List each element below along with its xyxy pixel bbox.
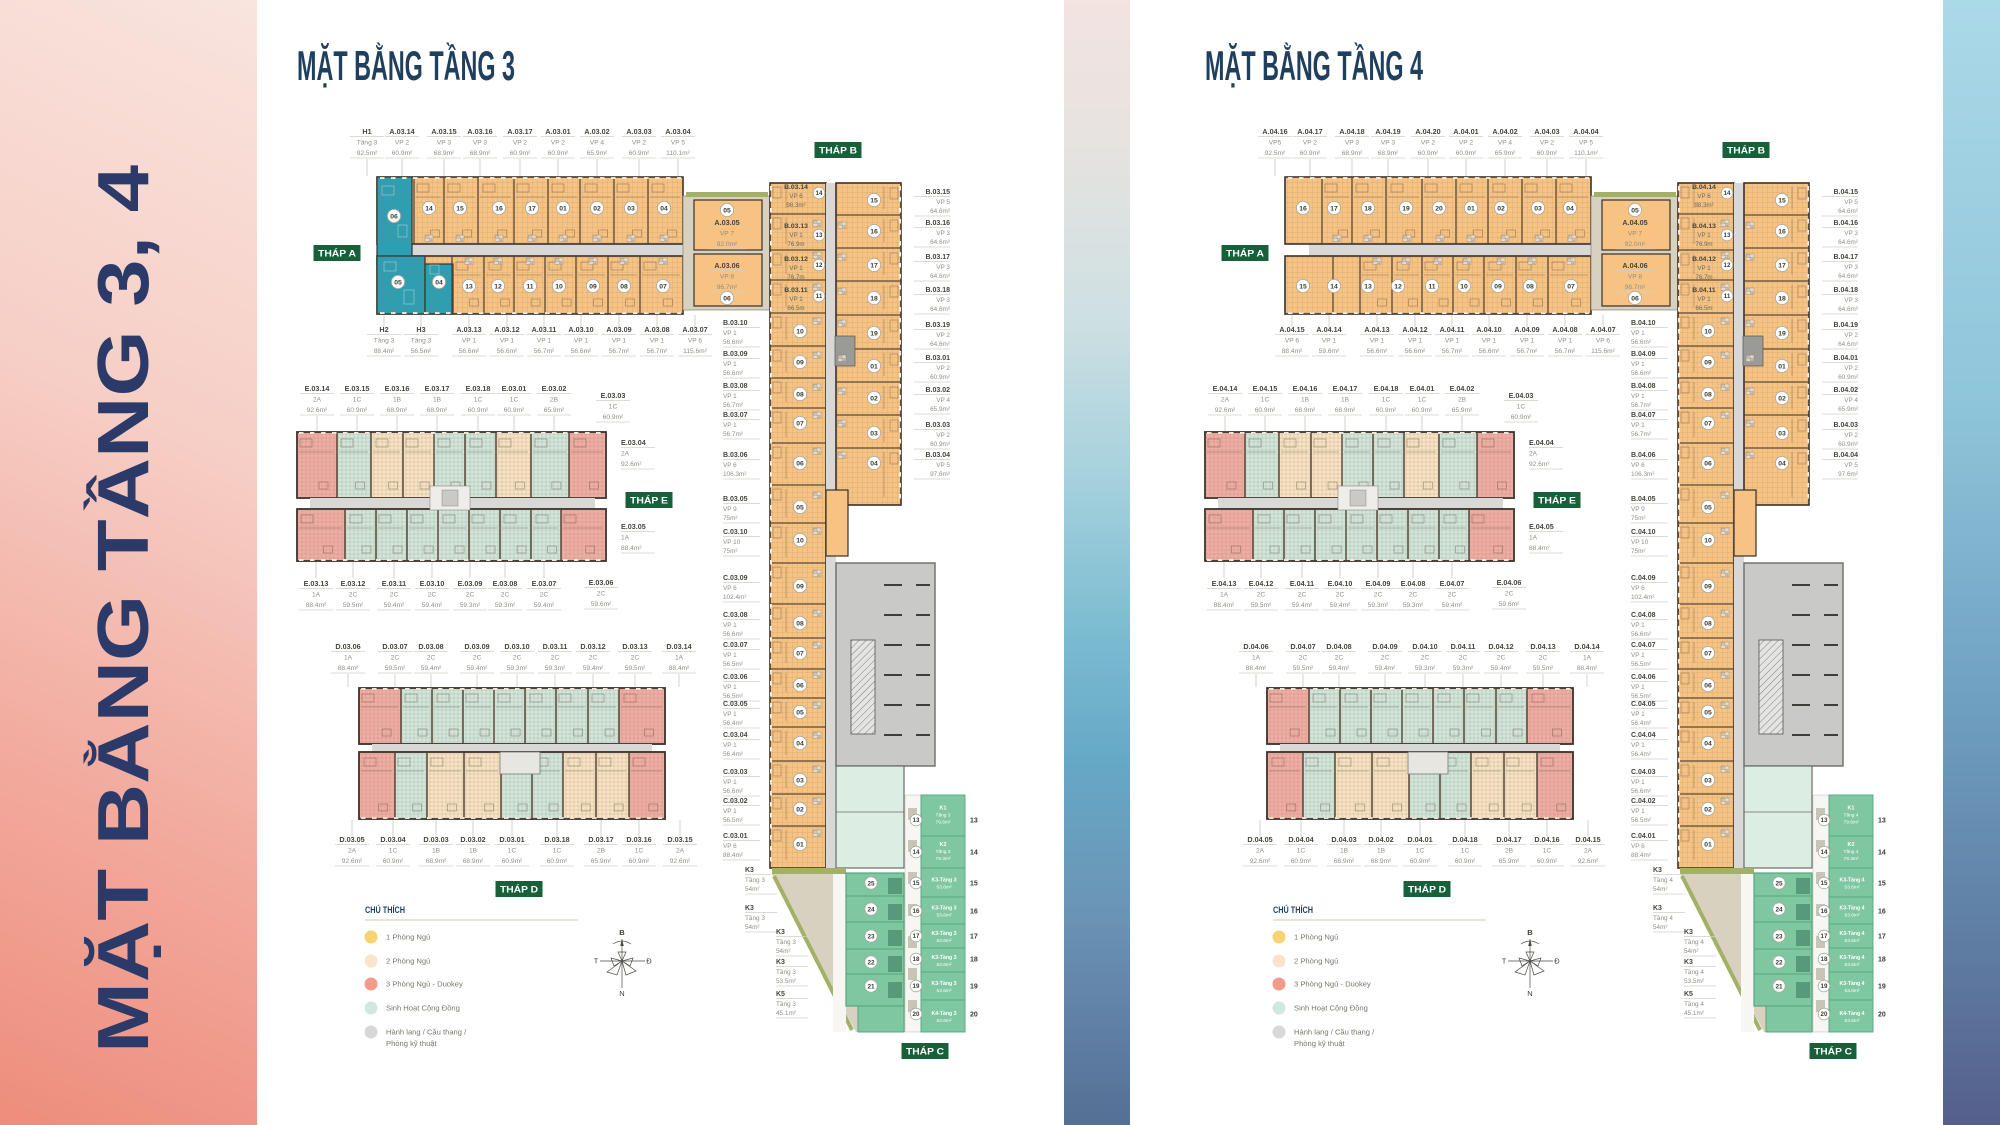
- svg-text:10: 10: [1704, 328, 1712, 335]
- svg-text:C.03.08: C.03.08: [723, 612, 748, 619]
- svg-text:13: 13: [465, 283, 473, 290]
- svg-text:VP 1: VP 1: [1697, 296, 1711, 303]
- svg-text:59.3m²: 59.3m²: [1368, 602, 1389, 609]
- svg-text:1 Phòng Ngủ: 1 Phòng Ngủ: [1294, 933, 1338, 942]
- svg-text:B.04.11: B.04.11: [1692, 287, 1716, 294]
- svg-text:17: 17: [1821, 933, 1828, 940]
- svg-text:76.7m: 76.7m: [1695, 274, 1712, 281]
- svg-text:Đ: Đ: [646, 957, 652, 966]
- svg-text:56.7m²: 56.7m²: [534, 348, 555, 355]
- svg-text:01: 01: [870, 363, 878, 370]
- svg-text:14: 14: [970, 850, 978, 857]
- svg-text:1C: 1C: [510, 397, 519, 404]
- svg-text:THÁP D: THÁP D: [500, 884, 539, 894]
- svg-text:T: T: [1502, 957, 1507, 966]
- svg-text:THÁP D: THÁP D: [1408, 884, 1447, 894]
- svg-text:A.04.04: A.04.04: [1573, 127, 1598, 136]
- svg-text:B.04.14: B.04.14: [1692, 184, 1716, 191]
- svg-text:A.04.06: A.04.06: [1622, 261, 1647, 270]
- svg-text:92.6m²: 92.6m²: [1529, 461, 1550, 468]
- svg-text:E.04.09: E.04.09: [1366, 579, 1391, 588]
- svg-text:VP 1: VP 1: [1697, 232, 1711, 239]
- svg-text:04: 04: [796, 740, 804, 747]
- svg-text:VP 1: VP 1: [537, 338, 552, 345]
- svg-text:VP 2: VP 2: [1303, 140, 1318, 147]
- svg-text:11: 11: [526, 283, 533, 290]
- svg-text:60.9m²: 60.9m²: [1838, 441, 1858, 448]
- svg-text:K3: K3: [745, 905, 754, 912]
- svg-text:2C: 2C: [428, 592, 437, 599]
- svg-text:88.4m²: 88.4m²: [1631, 852, 1651, 859]
- svg-text:09: 09: [1494, 283, 1502, 290]
- svg-text:59.3m²: 59.3m²: [545, 665, 566, 672]
- svg-text:05: 05: [1704, 504, 1712, 511]
- svg-text:59.5m²: 59.5m²: [625, 665, 646, 672]
- svg-text:VP 2: VP 2: [551, 140, 566, 147]
- svg-text:56.4m²: 56.4m²: [1631, 720, 1651, 727]
- svg-text:25: 25: [1775, 880, 1783, 887]
- svg-text:K3: K3: [1684, 929, 1693, 936]
- svg-text:24: 24: [867, 906, 875, 913]
- svg-text:2C: 2C: [589, 655, 598, 662]
- svg-text:20: 20: [970, 1012, 978, 1019]
- svg-text:VP 1: VP 1: [612, 338, 627, 345]
- svg-text:64.6m²: 64.6m²: [1838, 341, 1858, 348]
- svg-text:C.04.04: C.04.04: [1631, 732, 1656, 739]
- svg-text:THÁP B: THÁP B: [1727, 145, 1766, 155]
- svg-text:2C: 2C: [513, 655, 522, 662]
- svg-text:92.6m²: 92.6m²: [670, 858, 691, 865]
- svg-text:C.04.05: C.04.05: [1631, 701, 1656, 708]
- svg-text:53.6m²: 53.6m²: [937, 988, 952, 994]
- svg-text:60.9m²: 60.9m²: [547, 858, 568, 865]
- svg-text:VP 2: VP 2: [1540, 140, 1555, 147]
- svg-text:B.03.01: B.03.01: [925, 355, 950, 362]
- svg-text:88.4m²: 88.4m²: [1529, 545, 1550, 552]
- svg-text:B.04.15: B.04.15: [1833, 189, 1858, 196]
- svg-text:D.03.11: D.03.11: [543, 642, 568, 651]
- svg-text:1 Phòng Ngủ: 1 Phòng Ngủ: [386, 933, 430, 942]
- svg-text:59.6m²: 59.6m²: [1319, 348, 1340, 355]
- svg-text:21: 21: [867, 983, 875, 990]
- svg-text:B.03.09: B.03.09: [723, 351, 748, 358]
- svg-text:VP 1: VP 1: [500, 338, 515, 345]
- svg-text:E.03.08: E.03.08: [493, 579, 518, 588]
- svg-text:20: 20: [913, 1011, 920, 1018]
- svg-text:1C: 1C: [508, 848, 517, 855]
- svg-text:E.03.07: E.03.07: [532, 579, 557, 588]
- svg-text:53.6m²: 53.6m²: [937, 962, 952, 968]
- svg-text:C.04.03: C.04.03: [1631, 769, 1656, 776]
- svg-text:59.4m²: 59.4m²: [583, 665, 604, 672]
- svg-text:05: 05: [1704, 709, 1712, 716]
- svg-text:56.4m²: 56.4m²: [723, 720, 743, 727]
- svg-text:18: 18: [970, 957, 978, 964]
- svg-text:1C: 1C: [353, 397, 362, 404]
- svg-text:E.04.13: E.04.13: [1212, 579, 1237, 588]
- svg-text:THÁP C: THÁP C: [906, 1046, 945, 1056]
- svg-text:D.04.07: D.04.07: [1290, 642, 1315, 651]
- svg-text:16: 16: [1878, 909, 1886, 916]
- svg-text:VP 3: VP 3: [936, 297, 950, 304]
- svg-text:Tầng 3: Tầng 3: [776, 999, 796, 1008]
- svg-text:1A: 1A: [1252, 655, 1261, 662]
- svg-text:45.1m²: 45.1m²: [776, 1010, 796, 1017]
- svg-text:60.9m²: 60.9m²: [930, 441, 950, 448]
- svg-text:B.04.04: B.04.04: [1833, 452, 1858, 459]
- svg-text:2B: 2B: [597, 848, 606, 855]
- svg-text:68.9m²: 68.9m²: [1371, 858, 1392, 865]
- svg-text:K3-Tầng 3: K3-Tầng 3: [931, 981, 956, 987]
- svg-text:14: 14: [425, 205, 433, 212]
- svg-text:02: 02: [870, 395, 878, 402]
- svg-text:1C: 1C: [1261, 397, 1270, 404]
- svg-text:56.6m²: 56.6m²: [1631, 788, 1651, 795]
- svg-text:2B: 2B: [1458, 397, 1467, 404]
- svg-text:A.03.03: A.03.03: [626, 127, 651, 136]
- svg-text:K3: K3: [1653, 867, 1662, 874]
- svg-text:59.5m²: 59.5m²: [385, 665, 406, 672]
- svg-text:60.9m²: 60.9m²: [930, 374, 950, 381]
- svg-text:56.6m²: 56.6m²: [1631, 370, 1651, 377]
- svg-text:68.9m²: 68.9m²: [426, 858, 447, 865]
- svg-text:D.04.09: D.04.09: [1372, 642, 1397, 651]
- svg-text:C.03.05: C.03.05: [723, 701, 748, 708]
- svg-text:THÁP E: THÁP E: [1538, 495, 1576, 505]
- svg-text:VP 8: VP 8: [720, 274, 735, 281]
- svg-text:56.6m²: 56.6m²: [571, 348, 592, 355]
- svg-text:VP 1: VP 1: [723, 393, 737, 400]
- svg-text:E.04.17: E.04.17: [1333, 384, 1358, 393]
- svg-text:1A: 1A: [344, 655, 353, 662]
- svg-text:65.9m²: 65.9m²: [930, 406, 950, 413]
- svg-text:VP 1: VP 1: [650, 338, 665, 345]
- svg-text:17: 17: [970, 934, 978, 941]
- svg-text:60.9m²: 60.9m²: [502, 858, 523, 865]
- svg-text:A.04.16: A.04.16: [1262, 127, 1287, 136]
- svg-text:CHÚ THÍCH: CHÚ THÍCH: [365, 904, 405, 916]
- svg-text:56.5m²: 56.5m²: [1631, 661, 1651, 668]
- svg-text:05: 05: [796, 709, 804, 716]
- svg-text:D.04.13: D.04.13: [1530, 642, 1555, 651]
- svg-text:56.6m²: 56.6m²: [1405, 348, 1426, 355]
- svg-text:23: 23: [1775, 933, 1783, 940]
- svg-text:56.5m²: 56.5m²: [723, 693, 743, 700]
- svg-text:21: 21: [1775, 983, 1783, 990]
- svg-text:Tầng 3: Tầng 3: [776, 937, 796, 946]
- svg-text:60.9m²: 60.9m²: [629, 150, 650, 157]
- svg-text:E.04.06: E.04.06: [1497, 578, 1522, 587]
- svg-text:60.9m²: 60.9m²: [1455, 858, 1476, 865]
- svg-text:60.9m²: 60.9m²: [383, 858, 404, 865]
- svg-text:60.9m²: 60.9m²: [392, 150, 413, 157]
- svg-text:Tầng 3: Tầng 3: [374, 336, 395, 345]
- svg-text:2C: 2C: [1409, 592, 1418, 599]
- svg-text:04: 04: [660, 205, 668, 212]
- svg-text:88.4m²: 88.4m²: [669, 665, 690, 672]
- svg-text:08: 08: [796, 620, 804, 627]
- svg-text:VP 2: VP 2: [1421, 140, 1436, 147]
- svg-text:60.9m²: 60.9m²: [1412, 407, 1433, 414]
- svg-text:A.04.19: A.04.19: [1375, 127, 1400, 136]
- svg-text:2A: 2A: [1584, 848, 1593, 855]
- svg-text:VP 7: VP 7: [720, 231, 735, 238]
- svg-text:1A: 1A: [1583, 655, 1592, 662]
- svg-text:E.03.09: E.03.09: [458, 579, 483, 588]
- svg-text:17: 17: [913, 933, 920, 940]
- svg-text:2C: 2C: [1257, 592, 1266, 599]
- svg-text:E.04.10: E.04.10: [1328, 579, 1353, 588]
- svg-text:09: 09: [589, 283, 597, 290]
- svg-text:18: 18: [1878, 957, 1886, 964]
- svg-text:VP 2: VP 2: [1459, 140, 1474, 147]
- svg-text:VP 6: VP 6: [723, 462, 737, 469]
- svg-text:79.3m²: 79.3m²: [936, 856, 951, 862]
- svg-text:56.6m²: 56.6m²: [497, 348, 518, 355]
- svg-text:02: 02: [593, 205, 601, 212]
- svg-text:60.9m²: 60.9m²: [468, 407, 489, 414]
- svg-text:65.9m²: 65.9m²: [1495, 150, 1516, 157]
- svg-text:60.9m²: 60.9m²: [603, 414, 624, 421]
- svg-text:VP 1: VP 1: [789, 265, 803, 272]
- svg-text:E.03.15: E.03.15: [345, 384, 370, 393]
- svg-text:56.4m²: 56.4m²: [723, 751, 743, 758]
- svg-text:59.4m²: 59.4m²: [421, 665, 442, 672]
- svg-text:D.03.09: D.03.09: [464, 642, 489, 651]
- svg-text:VP 4: VP 4: [936, 397, 950, 404]
- svg-text:06: 06: [723, 295, 731, 302]
- svg-text:C.04.01: C.04.01: [1631, 833, 1656, 840]
- svg-text:VP 1: VP 1: [723, 742, 737, 749]
- svg-text:VP 1: VP 1: [789, 296, 803, 303]
- svg-text:56.7m²: 56.7m²: [1631, 402, 1651, 409]
- svg-text:1C: 1C: [474, 397, 483, 404]
- svg-text:VP 7: VP 7: [1628, 231, 1643, 238]
- svg-text:59.4m²: 59.4m²: [534, 602, 555, 609]
- svg-text:B.03.12: B.03.12: [784, 256, 808, 263]
- svg-text:VP 6: VP 6: [1631, 843, 1645, 850]
- svg-text:59.4m²: 59.4m²: [1491, 665, 1512, 672]
- svg-text:K3: K3: [1684, 959, 1693, 966]
- svg-text:13: 13: [970, 818, 978, 825]
- svg-text:06: 06: [390, 213, 398, 220]
- svg-text:B.03.19: B.03.19: [925, 322, 950, 329]
- svg-text:75m²: 75m²: [723, 515, 738, 522]
- svg-text:53.6m²: 53.6m²: [937, 1018, 952, 1024]
- svg-text:53.6m²: 53.6m²: [1845, 885, 1860, 891]
- svg-text:56.6m²: 56.6m²: [459, 348, 480, 355]
- svg-text:B.03.08: B.03.08: [723, 383, 748, 390]
- svg-text:VP 3: VP 3: [473, 140, 488, 147]
- svg-text:K3: K3: [1653, 905, 1662, 912]
- svg-text:VP 3: VP 3: [1381, 140, 1396, 147]
- svg-text:15: 15: [1821, 880, 1828, 887]
- svg-text:64.6m²: 64.6m²: [930, 208, 950, 215]
- svg-text:2C: 2C: [1336, 592, 1345, 599]
- svg-text:1C: 1C: [1297, 848, 1306, 855]
- svg-text:VP 1: VP 1: [1520, 338, 1535, 345]
- svg-text:B.03.11: B.03.11: [784, 287, 808, 294]
- svg-text:E.04.02: E.04.02: [1450, 384, 1475, 393]
- svg-text:13: 13: [816, 232, 823, 239]
- svg-text:59.3m²: 59.3m²: [1415, 665, 1436, 672]
- svg-text:68.9m²: 68.9m²: [1342, 150, 1363, 157]
- svg-text:K1: K1: [1848, 806, 1855, 812]
- svg-text:25: 25: [867, 880, 875, 887]
- svg-text:18: 18: [1364, 205, 1372, 212]
- svg-text:22: 22: [867, 959, 875, 966]
- svg-text:64.6m²: 64.6m²: [1838, 208, 1858, 215]
- svg-text:05: 05: [796, 504, 804, 511]
- svg-text:03: 03: [796, 777, 804, 784]
- svg-text:VP 4: VP 4: [1498, 140, 1513, 147]
- svg-text:115.6m²: 115.6m²: [1591, 348, 1616, 355]
- svg-text:D.04.06: D.04.06: [1243, 642, 1268, 651]
- svg-text:92.6m²: 92.6m²: [342, 858, 363, 865]
- svg-text:56.5m²: 56.5m²: [411, 348, 432, 355]
- svg-text:D.04.14: D.04.14: [1574, 642, 1599, 651]
- svg-text:VP 6: VP 6: [1285, 338, 1300, 345]
- svg-text:56.6m²: 56.6m²: [723, 339, 743, 346]
- svg-text:A.03.16: A.03.16: [467, 127, 492, 136]
- svg-text:19: 19: [913, 983, 920, 990]
- svg-text:2C: 2C: [427, 655, 436, 662]
- svg-text:16: 16: [870, 228, 878, 235]
- svg-text:CHÚ THÍCH: CHÚ THÍCH: [1273, 904, 1313, 916]
- svg-text:03: 03: [1534, 205, 1542, 212]
- svg-text:92.6m²: 92.6m²: [621, 461, 642, 468]
- svg-text:15: 15: [970, 881, 978, 888]
- svg-text:60.9m²: 60.9m²: [1456, 150, 1477, 157]
- svg-text:65.9m²: 65.9m²: [587, 150, 608, 157]
- svg-text:A.03.14: A.03.14: [389, 127, 414, 136]
- svg-text:VP 6: VP 6: [1596, 338, 1611, 345]
- svg-text:17: 17: [1330, 205, 1338, 212]
- svg-text:13: 13: [1821, 817, 1828, 824]
- svg-text:C.04.09: C.04.09: [1631, 575, 1656, 582]
- svg-text:2C: 2C: [1448, 592, 1457, 599]
- svg-text:1C: 1C: [1418, 397, 1427, 404]
- svg-text:VP 1: VP 1: [1631, 330, 1645, 337]
- svg-text:K3-Tầng 3: K3-Tầng 3: [931, 878, 956, 884]
- svg-text:59.5m²: 59.5m²: [343, 602, 364, 609]
- svg-text:2A: 2A: [1256, 848, 1265, 855]
- svg-text:E.03.06: E.03.06: [589, 578, 614, 587]
- svg-text:VP 1: VP 1: [723, 422, 737, 429]
- svg-text:THÁP B: THÁP B: [819, 145, 858, 155]
- svg-text:19: 19: [870, 330, 878, 337]
- svg-text:Tầng 4: Tầng 4: [1844, 849, 1859, 855]
- svg-text:08: 08: [1704, 391, 1712, 398]
- svg-text:15: 15: [1778, 197, 1786, 204]
- svg-text:56.5m²: 56.5m²: [723, 817, 743, 824]
- svg-text:65.9m²: 65.9m²: [1452, 407, 1473, 414]
- svg-text:2A: 2A: [621, 451, 630, 458]
- svg-text:04: 04: [1704, 740, 1712, 747]
- svg-text:VP 5: VP 5: [671, 140, 686, 147]
- svg-text:1C: 1C: [1416, 848, 1425, 855]
- svg-text:1B: 1B: [393, 397, 402, 404]
- svg-text:97.6m²: 97.6m²: [930, 471, 950, 478]
- svg-text:VP 1: VP 1: [1631, 652, 1645, 659]
- svg-text:VP 10: VP 10: [723, 539, 741, 546]
- svg-text:59.4m²: 59.4m²: [1330, 602, 1351, 609]
- svg-text:60.9m²: 60.9m²: [1537, 150, 1558, 157]
- svg-text:03: 03: [1778, 430, 1786, 437]
- svg-text:56.6m²: 56.6m²: [1631, 631, 1651, 638]
- svg-text:92.6m²: 92.6m²: [1215, 407, 1236, 414]
- svg-text:E.03.16: E.03.16: [385, 384, 410, 393]
- svg-text:59.6m²: 59.6m²: [591, 601, 612, 608]
- svg-text:K2: K2: [940, 842, 947, 848]
- svg-text:E.04.05: E.04.05: [1529, 522, 1554, 531]
- svg-text:VP 1: VP 1: [723, 361, 737, 368]
- svg-text:2C: 2C: [1539, 655, 1548, 662]
- svg-text:15: 15: [456, 205, 464, 212]
- svg-text:VP 1: VP 1: [1631, 808, 1645, 815]
- svg-text:15: 15: [1878, 881, 1886, 888]
- svg-text:14: 14: [816, 190, 823, 197]
- svg-text:10: 10: [1704, 537, 1712, 544]
- svg-text:79.6m²: 79.6m²: [1844, 820, 1859, 826]
- svg-text:K3-Tầng 4: K3-Tầng 4: [1839, 931, 1864, 937]
- svg-text:92.5m²: 92.5m²: [357, 150, 378, 157]
- svg-text:C.03.06: C.03.06: [723, 674, 748, 681]
- svg-text:88.4m²: 88.4m²: [1214, 602, 1235, 609]
- svg-text:17: 17: [870, 262, 878, 269]
- svg-text:17: 17: [528, 205, 536, 212]
- svg-text:Tầng 3: Tầng 3: [776, 967, 796, 976]
- svg-text:88.4m²: 88.4m²: [338, 665, 359, 672]
- svg-text:60.9m²: 60.9m²: [1300, 150, 1321, 157]
- svg-text:14: 14: [1724, 190, 1731, 197]
- svg-text:97.6m²: 97.6m²: [1838, 471, 1858, 478]
- svg-text:Tầng 4: Tầng 4: [1653, 875, 1673, 884]
- svg-text:53.6m²: 53.6m²: [937, 938, 952, 944]
- svg-text:92.6m²: 92.6m²: [1250, 858, 1271, 865]
- svg-text:98.3m²: 98.3m²: [786, 202, 805, 209]
- svg-text:VP 6: VP 6: [723, 843, 737, 850]
- svg-text:2C: 2C: [501, 592, 510, 599]
- svg-text:19: 19: [1778, 330, 1786, 337]
- svg-text:THÁP C: THÁP C: [1814, 1046, 1853, 1056]
- svg-text:60.9m²: 60.9m²: [1418, 150, 1439, 157]
- svg-text:1A: 1A: [1529, 535, 1538, 542]
- svg-text:19: 19: [1821, 983, 1828, 990]
- svg-text:65.9m²: 65.9m²: [1838, 406, 1858, 413]
- svg-text:VP 1: VP 1: [1482, 338, 1497, 345]
- svg-text:VP 2: VP 2: [632, 140, 647, 147]
- svg-text:VP 5: VP 5: [1844, 199, 1858, 206]
- svg-text:59.3m²: 59.3m²: [460, 602, 481, 609]
- svg-text:60.9m²: 60.9m²: [1410, 858, 1431, 865]
- svg-text:05: 05: [394, 279, 402, 286]
- svg-text:K3-Tầng 4: K3-Tầng 4: [1839, 906, 1864, 912]
- svg-text:1C: 1C: [389, 848, 398, 855]
- svg-text:16: 16: [970, 909, 978, 916]
- svg-text:B.03.03: B.03.03: [925, 422, 950, 429]
- svg-text:1A: 1A: [1220, 592, 1229, 599]
- svg-text:2A: 2A: [676, 848, 685, 855]
- svg-text:06: 06: [1704, 682, 1712, 689]
- svg-text:A.04.20: A.04.20: [1415, 127, 1440, 136]
- svg-text:Tầng 3: Tầng 3: [357, 138, 378, 147]
- svg-text:09: 09: [1704, 359, 1712, 366]
- svg-text:64.6m²: 64.6m²: [1838, 306, 1858, 313]
- svg-text:68.9m²: 68.9m²: [387, 407, 408, 414]
- svg-text:2C: 2C: [1421, 655, 1430, 662]
- svg-text:THÁP E: THÁP E: [630, 495, 668, 505]
